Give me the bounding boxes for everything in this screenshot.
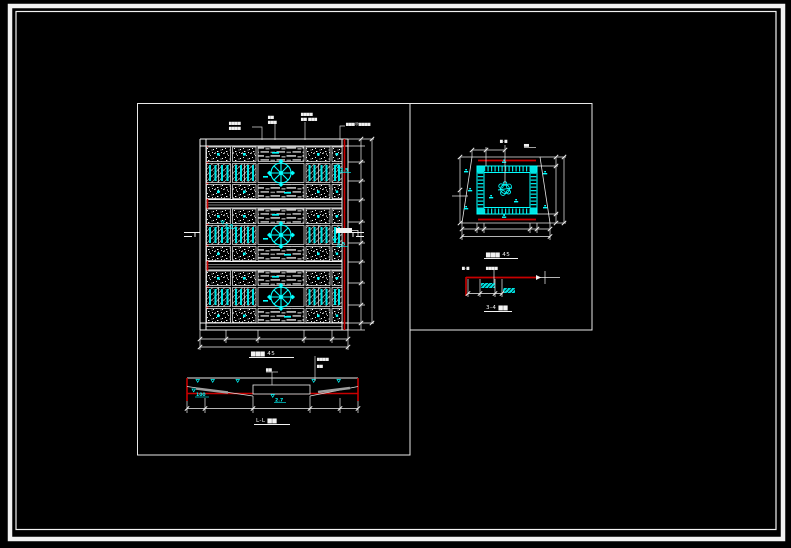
section-l-label-right-b: ▆▆	[316, 364, 323, 368]
callout-2-line2: ▆▆▆	[267, 120, 277, 124]
coffer-band-2	[207, 209, 343, 261]
section-l-label-right-a: ▆▆▆▆	[316, 357, 329, 361]
plan-title: ▆▆▆ 45	[249, 351, 294, 358]
callout-3-line1: ▆▆▆▆	[300, 112, 313, 116]
svg-text:▆▆▆ 45: ▆▆▆ 45	[250, 351, 275, 357]
section-l-view: 100 2.7 ▆▆ ▆▆▆▆ ▆▆	[185, 356, 360, 425]
section-l-label-center: ▆▆	[265, 368, 272, 372]
callout-1-line2: ▆▆▆▆	[228, 126, 241, 130]
ceiling-plan	[200, 139, 348, 330]
coffer-band-1	[207, 147, 343, 199]
svg-text:L-L ▆▆: L-L ▆▆	[256, 418, 277, 424]
viewport-right	[410, 104, 592, 331]
svg-text:▆▆▆ 45: ▆▆▆ 45	[485, 252, 510, 258]
detail-top-label: ▆-▆	[499, 139, 507, 143]
cad-canvas: ▆▆▆▆ ▆▆▆▆ ▆▆ ▆▆▆ ▆▆▆▆ ▆▆ ▆▆▆ ▆▆▆@▆▆▆▆	[0, 0, 791, 548]
coffer-band-3	[207, 271, 343, 323]
callout-4: ▆▆▆@▆▆▆▆	[345, 122, 371, 126]
section-a-label-left: ▆-▆	[461, 266, 469, 270]
svg-text:3-4 ▆▆: 3-4 ▆▆	[486, 305, 508, 311]
callout-1-line1: ▆▆▆▆	[228, 121, 241, 125]
callout-3-line2: ▆▆ ▆▆▆	[300, 117, 317, 121]
section-l-title: L-L ▆▆	[254, 418, 290, 425]
detail-top-tag: ▆▆	[523, 143, 529, 147]
callout-2-line1: ▆▆	[267, 115, 274, 119]
paper-frame	[10, 6, 783, 539]
section-a-title: 3-4 ▆▆	[484, 305, 512, 312]
section-a-label-right: ▆▆▆▆	[485, 266, 498, 270]
cad-drawing-svg: ▆▆▆▆ ▆▆▆▆ ▆▆ ▆▆▆ ▆▆▆▆ ▆▆ ▆▆▆ ▆▆▆@▆▆▆▆	[0, 0, 791, 548]
detail-title: ▆▆▆ 45	[484, 252, 518, 259]
section-a-view: ▆-▆ ▆▆▆▆ 3-4 ▆▆	[461, 266, 560, 312]
coffer-detail: ▆-▆ ▆▆	[452, 139, 566, 259]
plan-callouts: ▆▆▆▆ ▆▆▆▆ ▆▆ ▆▆▆ ▆▆▆▆ ▆▆ ▆▆▆ ▆▆▆@▆▆▆▆	[228, 112, 371, 140]
section-l-elev-center: 2.7	[271, 395, 286, 404]
